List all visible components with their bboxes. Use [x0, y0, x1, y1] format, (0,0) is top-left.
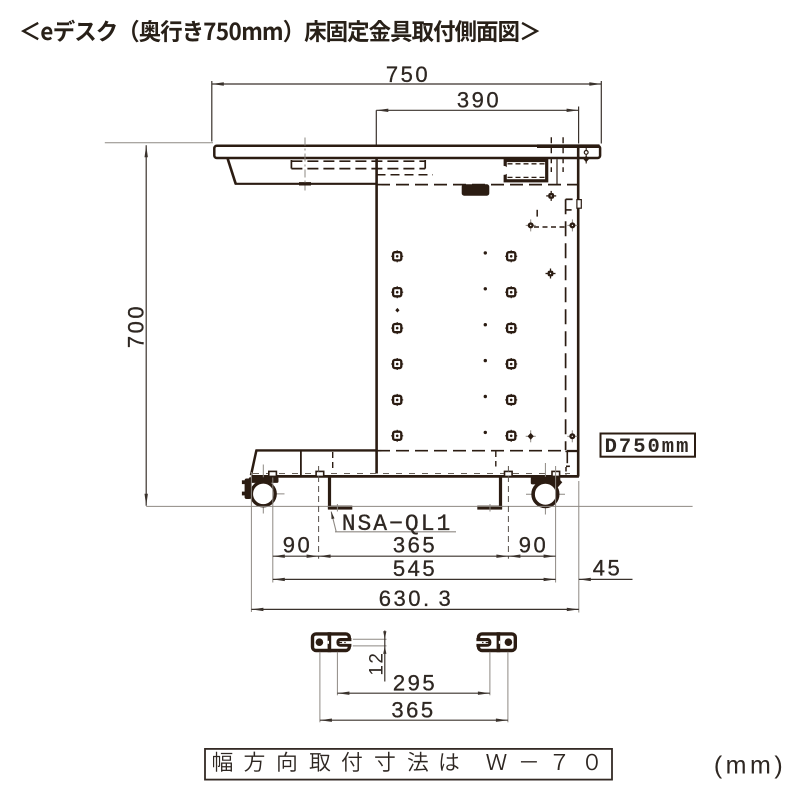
svg-text:295: 295: [393, 671, 437, 696]
svg-text:390: 390: [457, 88, 501, 113]
svg-text:545: 545: [393, 556, 437, 581]
svg-text:90: 90: [519, 533, 548, 558]
svg-text:45: 45: [593, 556, 622, 581]
svg-text:750: 750: [386, 62, 430, 87]
svg-text:(mm): (mm): [714, 752, 786, 780]
svg-text:90: 90: [283, 533, 312, 558]
svg-text:D750mm: D750mm: [605, 436, 691, 459]
svg-text:365: 365: [391, 698, 435, 723]
svg-text:700: 700: [124, 304, 149, 348]
svg-text:12: 12: [367, 652, 388, 676]
svg-text:NSA−QL1: NSA−QL1: [342, 511, 453, 537]
svg-text:630. 3: 630. 3: [379, 586, 453, 611]
